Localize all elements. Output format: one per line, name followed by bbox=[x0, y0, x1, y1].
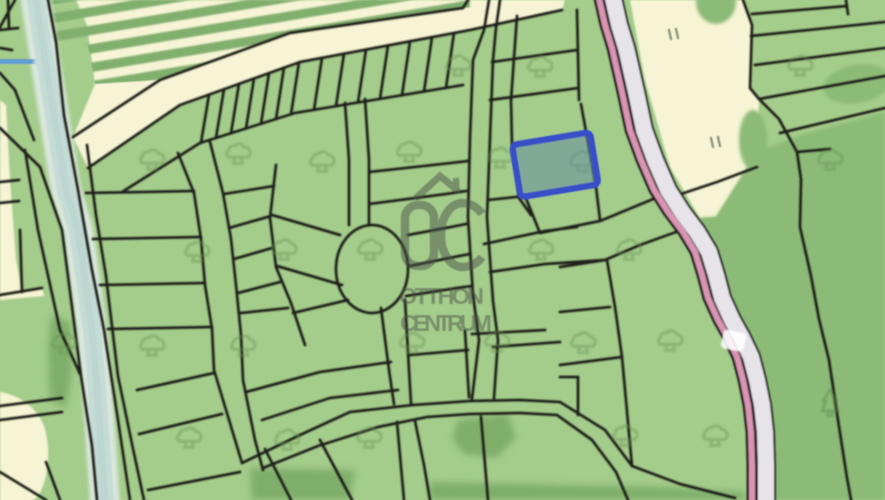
svg-text:CENTRUM: CENTRUM bbox=[400, 310, 492, 336]
svg-text:OTTHON: OTTHON bbox=[399, 283, 484, 309]
